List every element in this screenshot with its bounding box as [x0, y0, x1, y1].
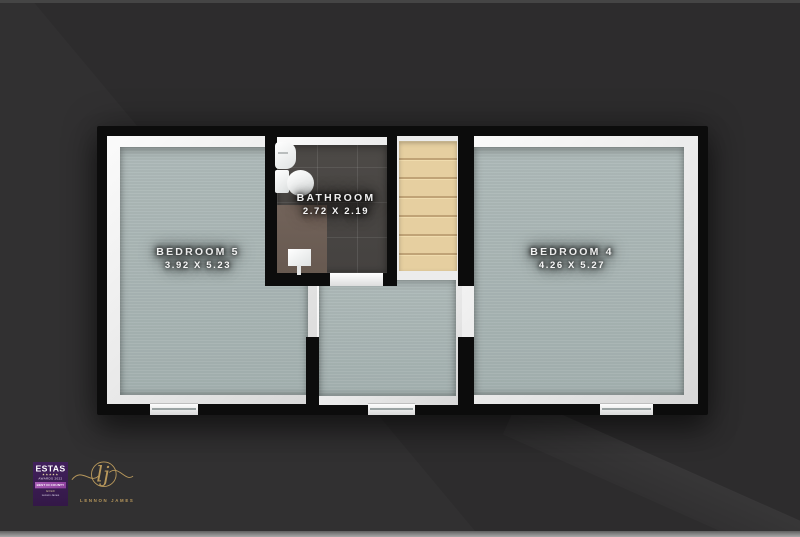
- bedroom5-name: BEDROOM 5: [108, 246, 288, 259]
- bathroom-label: BATHROOM 2.72 X 2.19: [276, 192, 396, 219]
- lennon-james-wordmark: LENNON JAMES: [80, 498, 124, 503]
- monogram-letters: lj: [96, 463, 110, 487]
- room-landing: [317, 278, 462, 405]
- bedroom5-dimensions: 3.92 X 5.23: [108, 259, 288, 273]
- stair-treads: [399, 141, 457, 271]
- bedroom4-window: [600, 403, 653, 415]
- bathroom-name: BATHROOM: [276, 192, 396, 205]
- wall-bedroom5-lower: [306, 337, 319, 415]
- bedroom5-window: [150, 403, 198, 415]
- estas-sub1: GOLD: [46, 490, 55, 493]
- bathroom-dimensions: 2.72 X 2.19: [276, 205, 396, 219]
- landing-floor: [319, 278, 456, 396]
- estas-title: ESTAS: [36, 464, 66, 473]
- pedestal-basin-icon: [288, 249, 311, 266]
- landing-window: [368, 403, 415, 415]
- bedroom4-name: BEDROOM 4: [482, 246, 662, 259]
- wall-bedroom4-lower: [458, 337, 474, 415]
- bathroom-doorway: [330, 273, 383, 286]
- wall-bedroom4-upper: [458, 126, 474, 286]
- background-top-edge: [0, 0, 800, 3]
- estas-sub2: Lennon James: [42, 494, 59, 497]
- bedroom5-label: BEDROOM 5 3.92 X 5.23: [108, 246, 288, 273]
- background-diagonal-stripe: [503, 396, 800, 537]
- estas-award-badge: ESTAS ★★★★★ AWARDS 2022 BEST IN COUNTY G…: [33, 462, 68, 506]
- lennon-james-logo: lj LENNON JAMES: [70, 456, 134, 508]
- estas-band: BEST IN COUNTY: [35, 482, 66, 488]
- estas-awards-line: AWARDS 2022: [38, 477, 62, 481]
- background-bottom-edge: [0, 531, 800, 537]
- sink-icon: [275, 142, 296, 169]
- lennon-james-monogram-icon: lj: [70, 456, 134, 498]
- bedroom4-label: BEDROOM 4 4.26 X 5.27: [482, 246, 662, 273]
- bedroom4-dimensions: 4.26 X 5.27: [482, 259, 662, 273]
- floorplan-page: BEDROOM 5 3.92 X 5.23 BATHROOM 2.72 X 2.…: [0, 0, 800, 537]
- estas-badge-content: ESTAS ★★★★★ AWARDS 2022 BEST IN COUNTY G…: [33, 462, 68, 506]
- staircase: [397, 136, 458, 280]
